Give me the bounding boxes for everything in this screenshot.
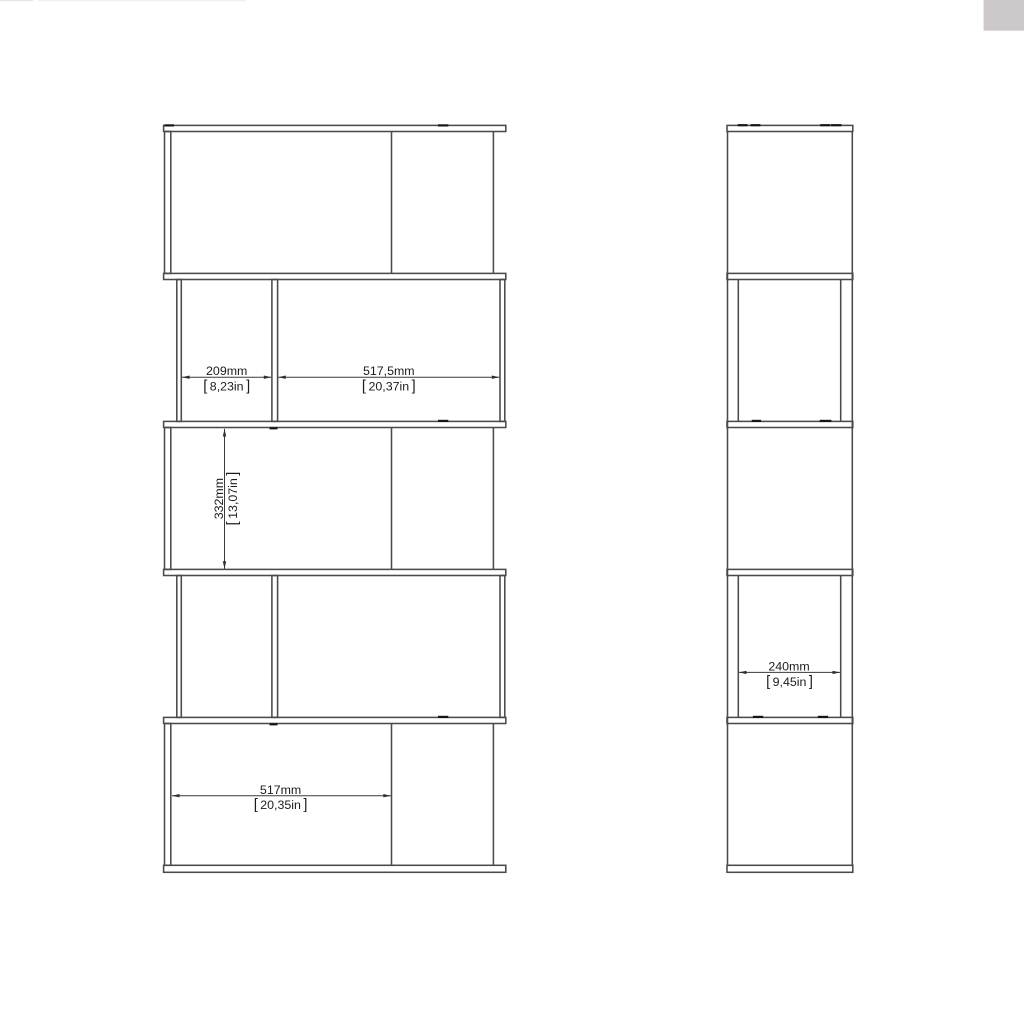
svg-text:[ 13,07in ]: [ 13,07in ]: [225, 472, 241, 526]
svg-text:[ 20,37in ]: [ 20,37in ]: [362, 378, 416, 394]
svg-text:[ 8,23in ]: [ 8,23in ]: [203, 378, 250, 394]
svg-text:517,5mm: 517,5mm: [363, 364, 415, 378]
svg-text:[ 9,45in ]: [ 9,45in ]: [766, 674, 813, 690]
svg-text:240mm: 240mm: [768, 659, 809, 673]
svg-text:517mm: 517mm: [260, 783, 301, 797]
svg-text:332mm: 332mm: [212, 478, 226, 519]
svg-text:[ 20,35in ]: [ 20,35in ]: [254, 797, 308, 813]
svg-text:209mm: 209mm: [206, 364, 247, 378]
